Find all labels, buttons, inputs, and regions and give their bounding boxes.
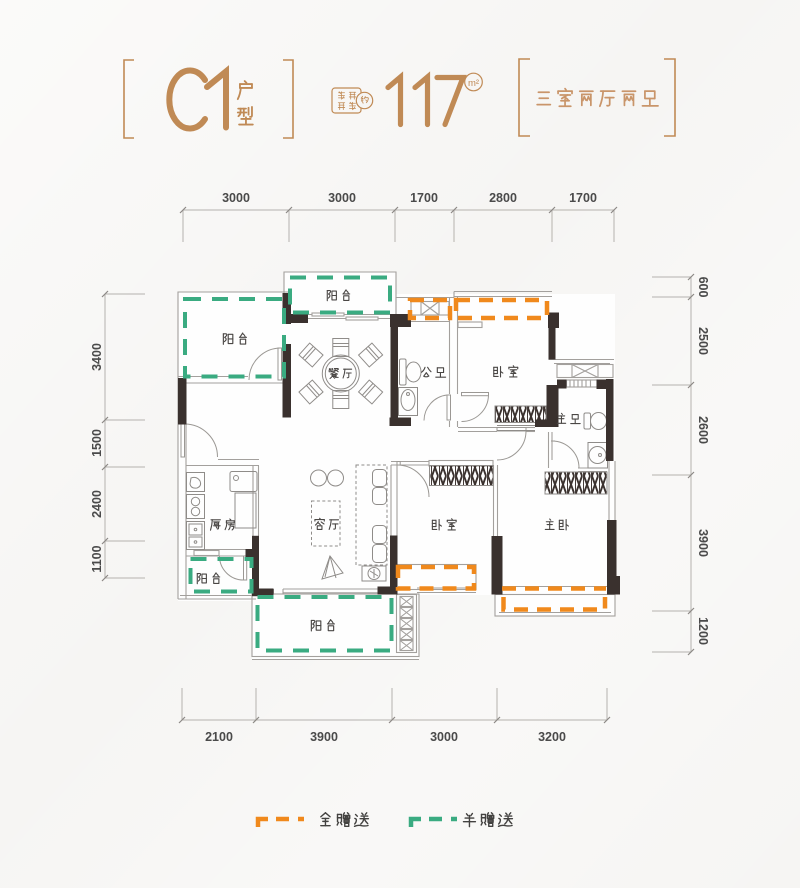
svg-text:2600: 2600	[696, 416, 710, 444]
svg-text:2400: 2400	[90, 490, 104, 518]
svg-text:m²: m²	[468, 78, 479, 89]
svg-text:3000: 3000	[430, 730, 458, 744]
svg-text:2100: 2100	[205, 730, 233, 744]
svg-text:2800: 2800	[489, 191, 517, 205]
svg-text:1200: 1200	[696, 617, 710, 645]
svg-text:1100: 1100	[90, 545, 104, 572]
svg-text:3000: 3000	[328, 191, 356, 205]
svg-text:1700: 1700	[410, 191, 438, 205]
svg-text:3200: 3200	[538, 730, 566, 744]
svg-text:3900: 3900	[696, 529, 710, 557]
svg-text:3000: 3000	[222, 191, 250, 205]
svg-text:2500: 2500	[696, 327, 710, 355]
svg-text:1500: 1500	[90, 429, 104, 457]
svg-text:3900: 3900	[310, 730, 338, 744]
svg-text:600: 600	[696, 277, 710, 298]
svg-text:1700: 1700	[569, 191, 597, 205]
svg-text:3400: 3400	[90, 343, 104, 371]
